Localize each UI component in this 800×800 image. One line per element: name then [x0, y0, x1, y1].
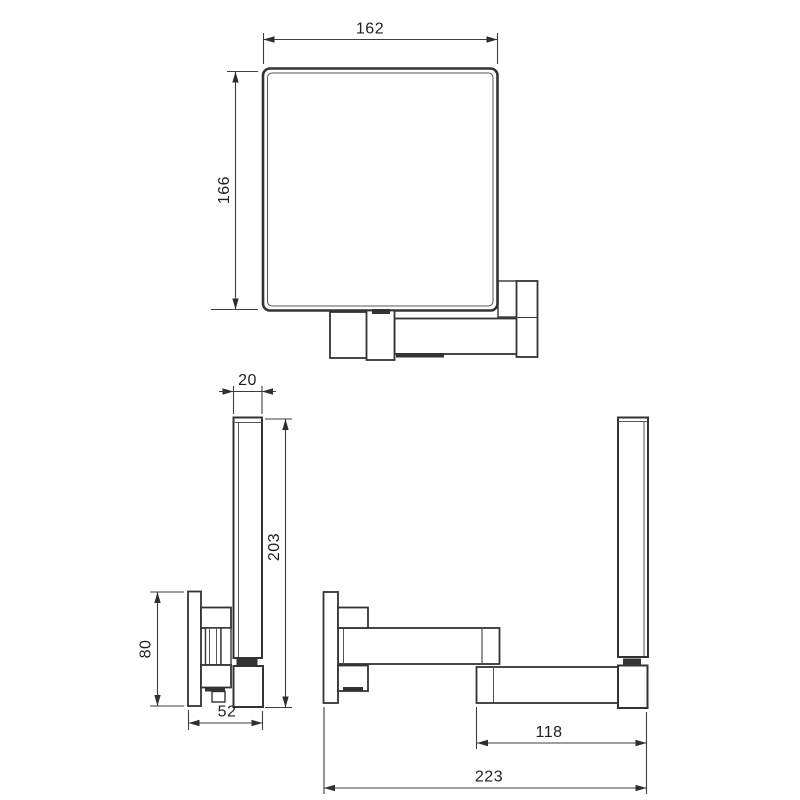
arrowhead-left — [264, 36, 275, 42]
dim-front-height: 166 — [211, 72, 258, 310]
arrowhead-right — [487, 36, 498, 42]
front-wall-plate — [517, 281, 538, 357]
mirror-front-outline — [263, 69, 498, 311]
dim-arm-reach-label: 118 — [535, 724, 562, 741]
arrowhead-right — [636, 785, 647, 791]
folded-bracket-upper-block — [201, 608, 231, 629]
folded-lower-tab — [212, 692, 225, 703]
front-arm — [395, 319, 518, 355]
mirror-profile-folded — [234, 418, 263, 659]
dim-front-height-label: 166 — [216, 176, 233, 204]
side-view-extended — [324, 418, 649, 709]
dim-front-width: 162 — [264, 21, 498, 65]
arrowhead-up — [154, 592, 160, 603]
front-wall-connector — [498, 281, 517, 317]
extended-pivot-washer — [623, 659, 641, 666]
arrowhead-right — [252, 720, 263, 726]
arrowhead-left — [189, 720, 200, 726]
technical-drawing: 162 166 20 — [0, 0, 800, 800]
folded-pivot-housing — [234, 666, 264, 707]
dim-folded-depth-label: 52 — [218, 704, 237, 721]
pivot-washer — [237, 659, 258, 667]
arrowhead-down — [232, 299, 238, 310]
arrowhead-left — [477, 740, 488, 746]
arrowhead-right — [223, 388, 234, 394]
drawing-canvas: 162 166 20 — [0, 0, 800, 800]
dim-overall-depth: 223 — [324, 707, 647, 794]
arrowhead-left — [324, 785, 335, 791]
front-arm-shadow — [396, 353, 444, 358]
front-bracket-left — [330, 312, 367, 358]
arrowhead-down — [282, 697, 288, 708]
extended-wall-plate — [324, 592, 339, 703]
arrowhead-up — [232, 72, 238, 83]
front-bracket-pivot — [367, 311, 395, 361]
folded-bracket-lower-block — [201, 665, 231, 688]
extended-lower-shadow — [343, 687, 363, 691]
arrowhead-right — [636, 740, 647, 746]
extended-pivot-housing — [618, 666, 648, 709]
side-view-folded — [188, 418, 263, 708]
dim-plate-height-label: 80 — [138, 640, 155, 659]
dim-overall-depth-label: 223 — [475, 769, 503, 786]
folded-arm-edge — [221, 628, 231, 665]
dim-plate-height: 80 — [138, 592, 185, 706]
dim-profile-thickness: 20 — [219, 372, 276, 414]
extended-arm-segment-1 — [338, 628, 500, 664]
front-view — [263, 69, 538, 361]
dim-overall-height: 203 — [265, 419, 292, 708]
dim-profile-thickness-label: 20 — [238, 372, 257, 389]
arrowhead-down — [154, 695, 160, 706]
folded-wall-plate — [188, 592, 201, 707]
extended-arm-segment-2 — [477, 667, 619, 703]
extended-bracket-upper-block — [338, 608, 368, 629]
front-pivot-tab — [372, 309, 390, 314]
arrowhead-up — [282, 419, 288, 430]
folded-hinge-column — [206, 628, 222, 665]
arrowhead-left — [262, 388, 273, 394]
dim-front-width-label: 162 — [356, 21, 384, 38]
dim-overall-height-label: 203 — [266, 533, 283, 561]
